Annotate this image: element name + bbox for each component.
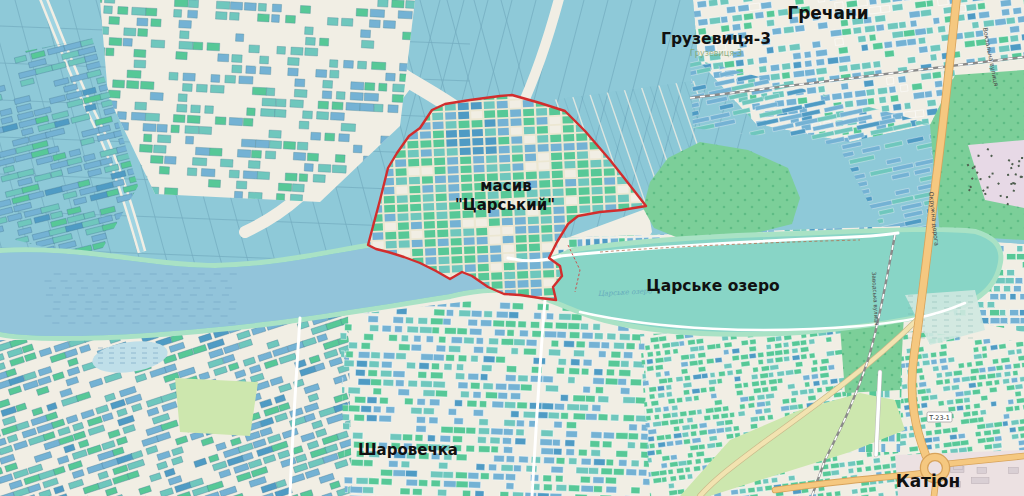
place-label-hruzevytsia-3: Грузевиця-3 bbox=[661, 30, 771, 48]
place-label-kation: Катіон bbox=[896, 471, 960, 491]
road-ref-badge: Т-23-1 bbox=[927, 412, 952, 422]
massif-label-line2: "Царський" bbox=[455, 196, 555, 214]
road-ref-badge-text: Т-23-1 bbox=[928, 414, 950, 422]
map-canvas[interactable]: Грузевиця-3 Царське озеро Вокзальна вули… bbox=[0, 0, 1024, 496]
massif-label-line1: масив bbox=[480, 177, 531, 195]
village-ghost-label: Грузевиця-3 bbox=[690, 49, 742, 58]
lake-label: Царське озеро bbox=[646, 277, 779, 295]
place-label-sharovechka: Шаровечка bbox=[358, 441, 458, 459]
place-label-hrechany: Гречани bbox=[787, 3, 868, 23]
map-viewport[interactable]: Грузевиця-3 Царське озеро Вокзальна вули… bbox=[0, 0, 1024, 496]
